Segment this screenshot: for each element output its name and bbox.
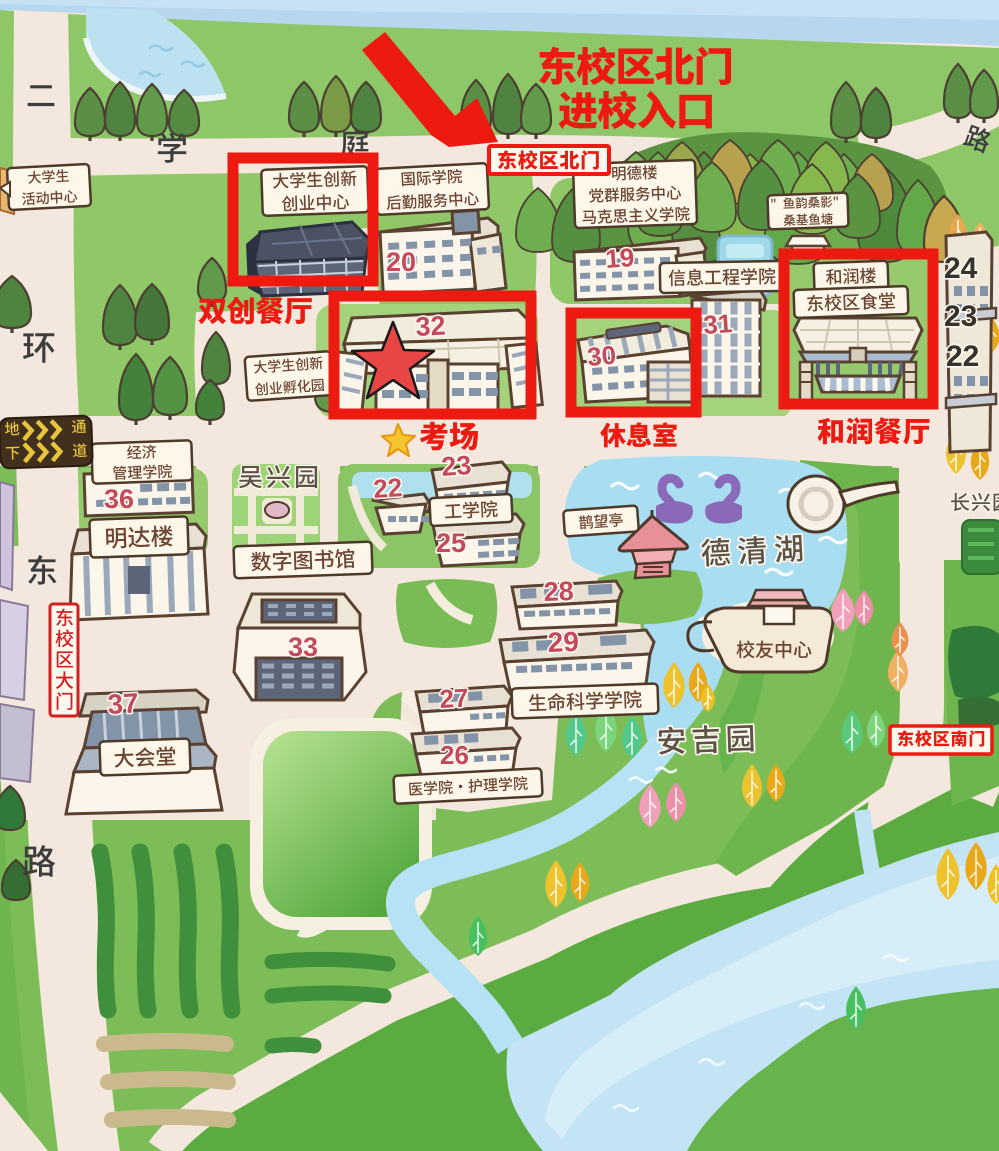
- svg-text:26: 26: [440, 740, 469, 770]
- svg-text:25: 25: [436, 528, 466, 558]
- svg-text:31: 31: [702, 308, 733, 340]
- svg-text:32: 32: [415, 310, 447, 342]
- svg-text:24: 24: [944, 252, 978, 285]
- svg-text:29: 29: [547, 626, 579, 658]
- svg-text:19: 19: [604, 242, 635, 274]
- svg-text:28: 28: [543, 576, 574, 607]
- svg-text:33: 33: [288, 632, 318, 662]
- svg-text:22: 22: [946, 340, 979, 373]
- svg-text:22: 22: [372, 472, 403, 504]
- svg-text:27: 27: [439, 683, 469, 714]
- svg-text:36: 36: [104, 484, 134, 514]
- svg-text:20: 20: [386, 247, 416, 277]
- svg-text:23: 23: [944, 300, 977, 333]
- svg-text:30: 30: [586, 340, 617, 372]
- svg-text:37: 37: [107, 687, 140, 720]
- svg-text:23: 23: [440, 450, 472, 482]
